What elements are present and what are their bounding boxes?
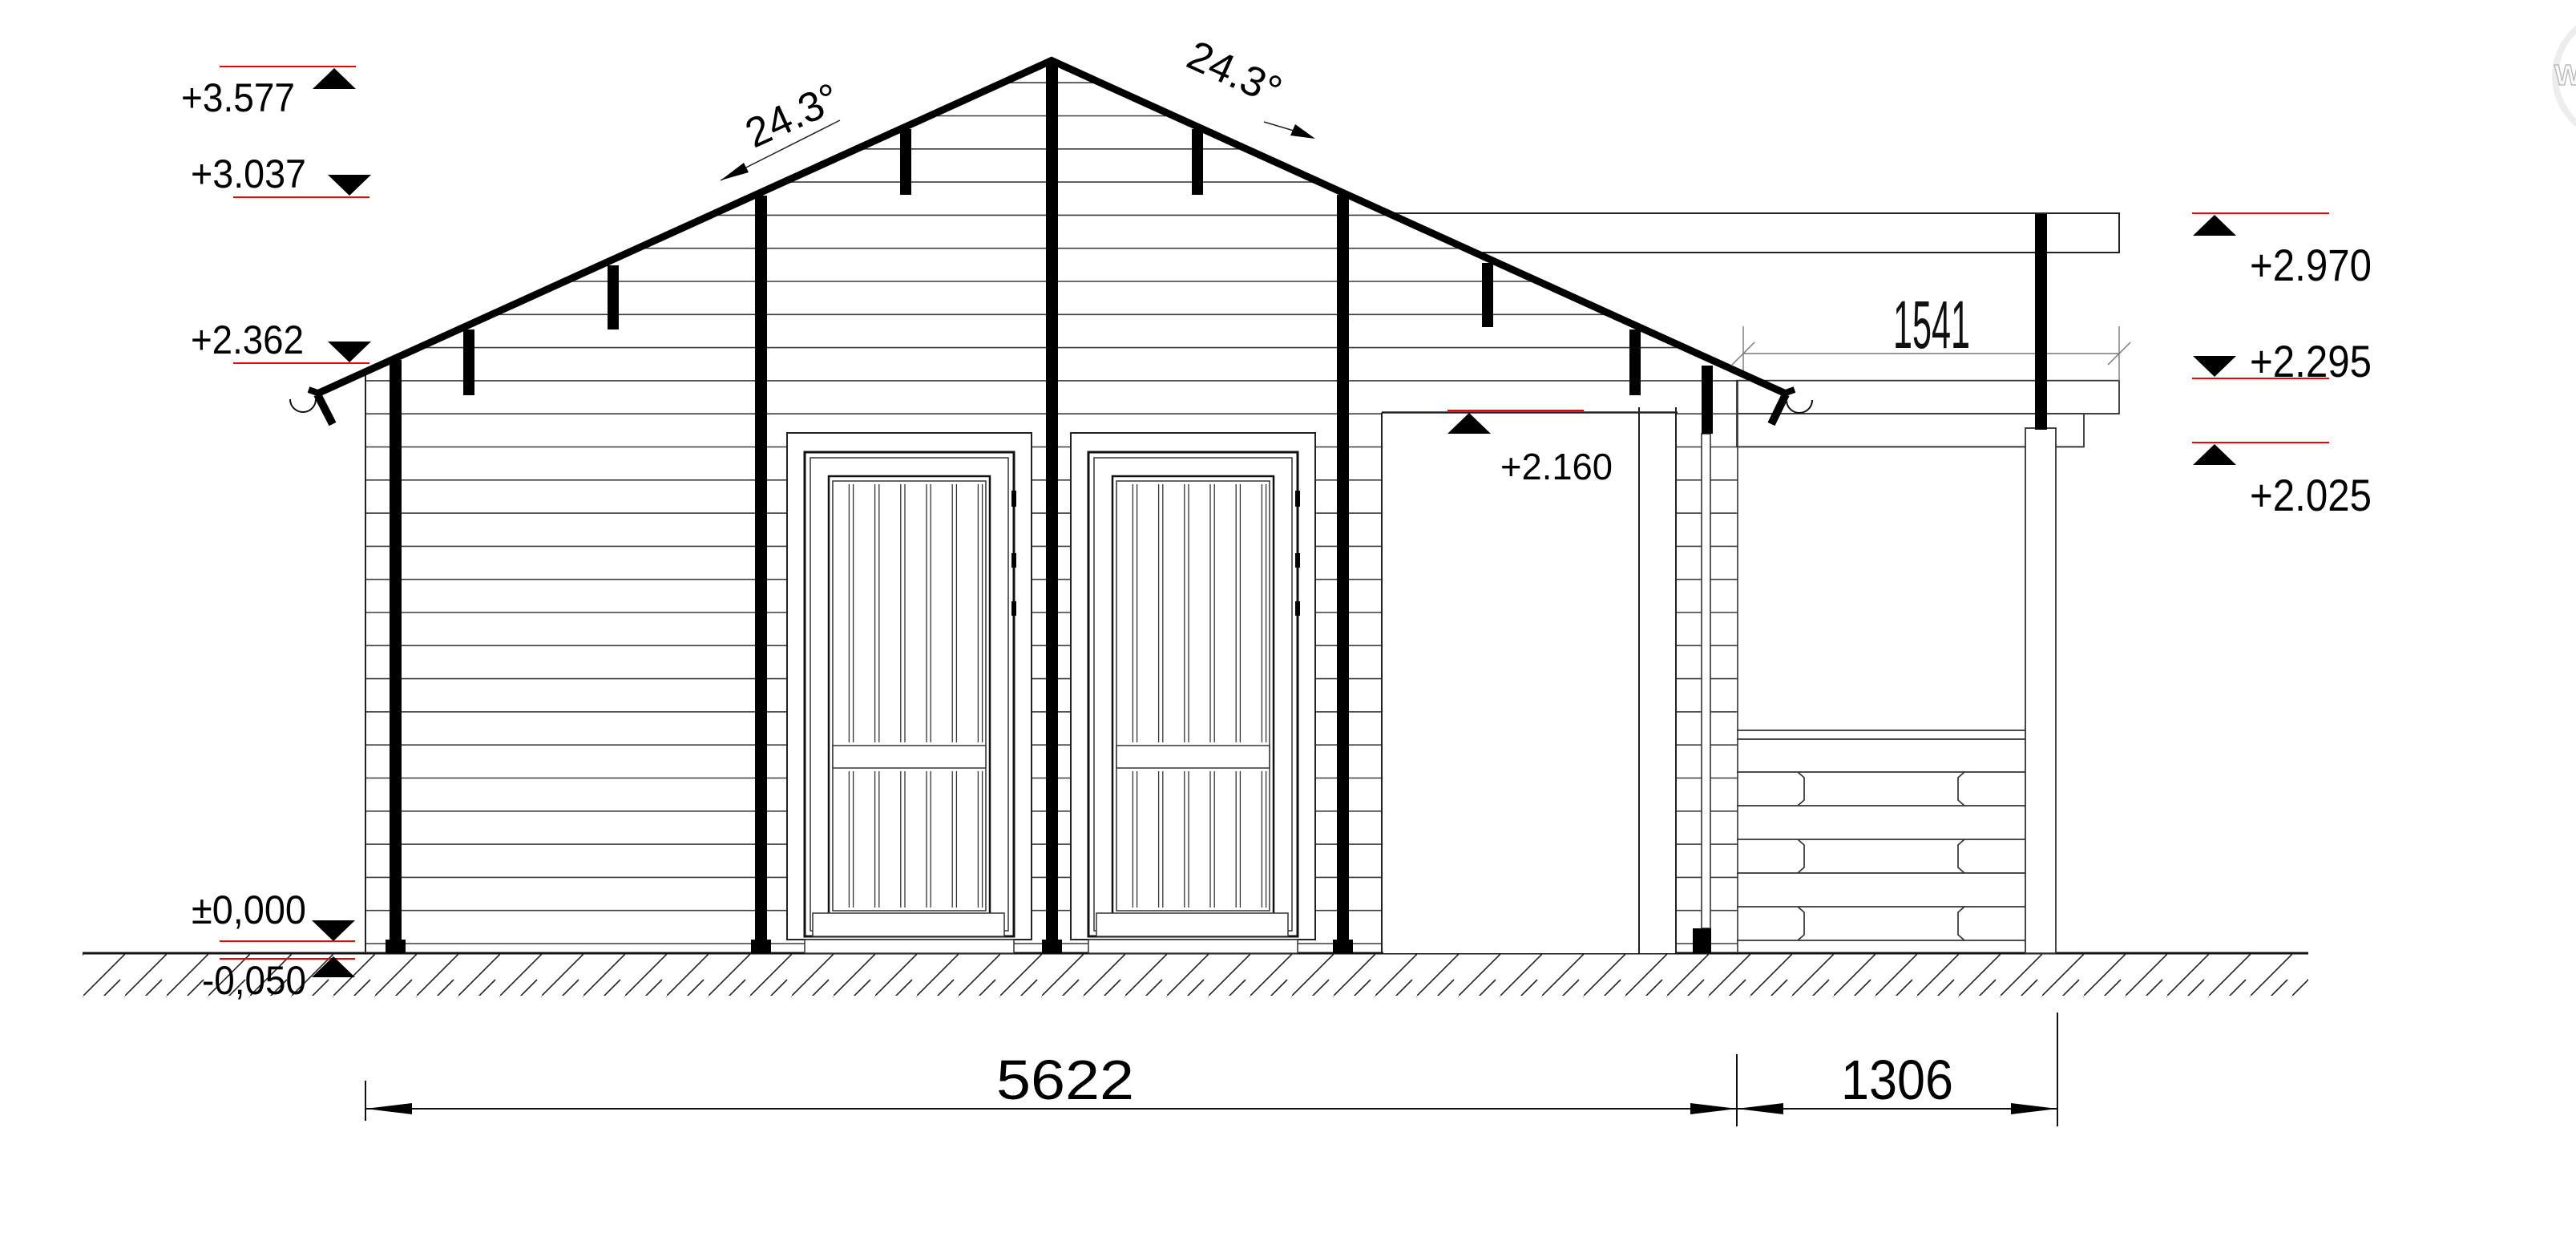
svg-text:+2.970: +2.970 <box>2250 240 2372 290</box>
svg-text:+3.577: +3.577 <box>181 75 295 120</box>
svg-text:+3.037: +3.037 <box>191 152 306 196</box>
svg-text:-0,050: -0,050 <box>202 958 306 1003</box>
svg-text:+2.295: +2.295 <box>2250 336 2372 386</box>
svg-text:+2.160: +2.160 <box>1500 446 1613 487</box>
svg-text:+2.025: +2.025 <box>2250 470 2372 520</box>
svg-text:±0,000: ±0,000 <box>192 887 306 932</box>
svg-text:1306: 1306 <box>1841 1049 1953 1111</box>
svg-text:+2.362: +2.362 <box>191 317 304 362</box>
svg-text:5622: 5622 <box>996 1049 1134 1111</box>
svg-text:1541: 1541 <box>1893 287 1970 362</box>
svg-text:W: W <box>2554 59 2576 91</box>
